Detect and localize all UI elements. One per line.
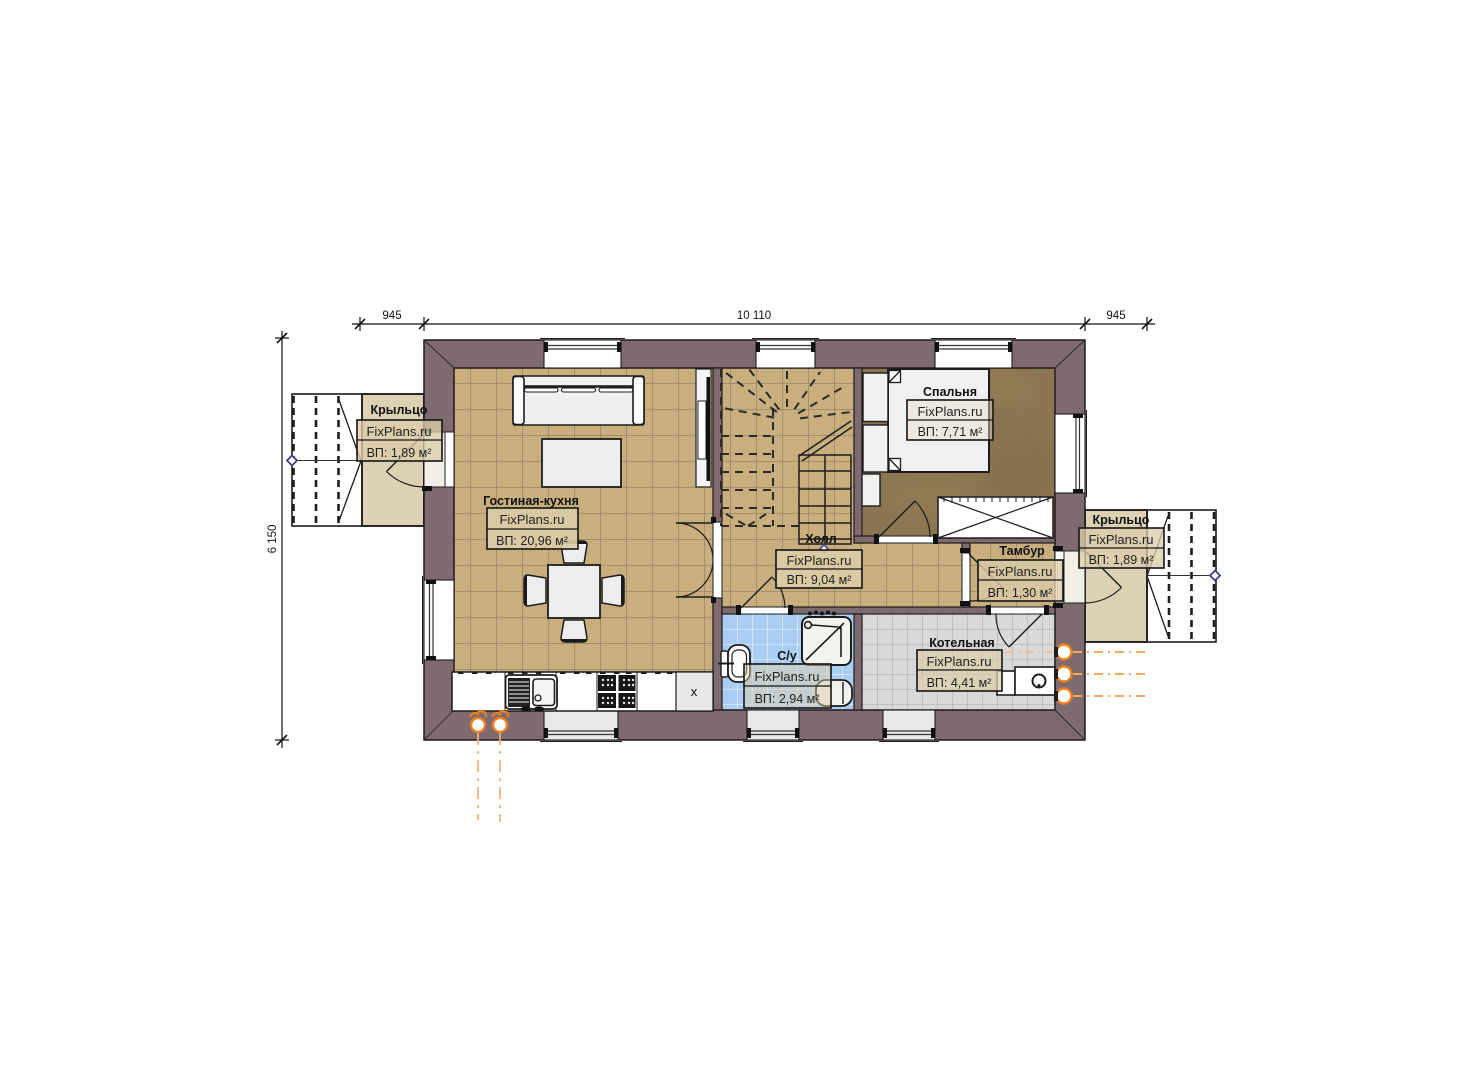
svg-text:ВП: 4,41 м²: ВП: 4,41 м² <box>927 676 992 690</box>
svg-text:Крыльцо: Крыльцо <box>1093 513 1150 527</box>
svg-text:FixPlans.ru: FixPlans.ru <box>926 654 991 669</box>
svg-text:10 110: 10 110 <box>737 310 771 322</box>
svg-text:Тамбур: Тамбур <box>999 544 1045 558</box>
svg-text:945: 945 <box>382 310 401 322</box>
svg-text:Гостиная-кухня: Гостиная-кухня <box>483 494 579 508</box>
svg-text:ВП: 1,89 м²: ВП: 1,89 м² <box>1089 553 1154 567</box>
svg-text:FixPlans.ru: FixPlans.ru <box>366 424 431 439</box>
svg-text:Крыльцо: Крыльцо <box>371 403 428 417</box>
svg-text:FixPlans.ru: FixPlans.ru <box>1088 532 1153 547</box>
svg-text:FixPlans.ru: FixPlans.ru <box>987 564 1052 579</box>
svg-text:ВП: 7,71 м²: ВП: 7,71 м² <box>918 425 983 439</box>
svg-text:С/у: С/у <box>777 649 797 663</box>
svg-text:FixPlans.ru: FixPlans.ru <box>754 669 819 684</box>
svg-text:ВП: 1,89 м²: ВП: 1,89 м² <box>367 446 432 460</box>
svg-text:FixPlans.ru: FixPlans.ru <box>499 512 564 527</box>
svg-text:ВП: 9,04 м²: ВП: 9,04 м² <box>787 573 852 587</box>
svg-text:6 150: 6 150 <box>267 525 279 554</box>
svg-text:FixPlans.ru: FixPlans.ru <box>786 553 851 568</box>
svg-text:945: 945 <box>1106 310 1125 322</box>
svg-text:ВП: 1,30 м²: ВП: 1,30 м² <box>988 586 1053 600</box>
svg-text:x: x <box>691 684 698 699</box>
svg-text:Котельная: Котельная <box>929 636 994 650</box>
svg-text:ВП: 2,94 м²: ВП: 2,94 м² <box>755 692 820 706</box>
svg-text:ВП: 20,96 м²: ВП: 20,96 м² <box>496 534 568 548</box>
svg-text:FixPlans.ru: FixPlans.ru <box>917 404 982 419</box>
svg-text:Спальня: Спальня <box>923 385 977 399</box>
svg-text:Холл: Холл <box>805 532 836 546</box>
